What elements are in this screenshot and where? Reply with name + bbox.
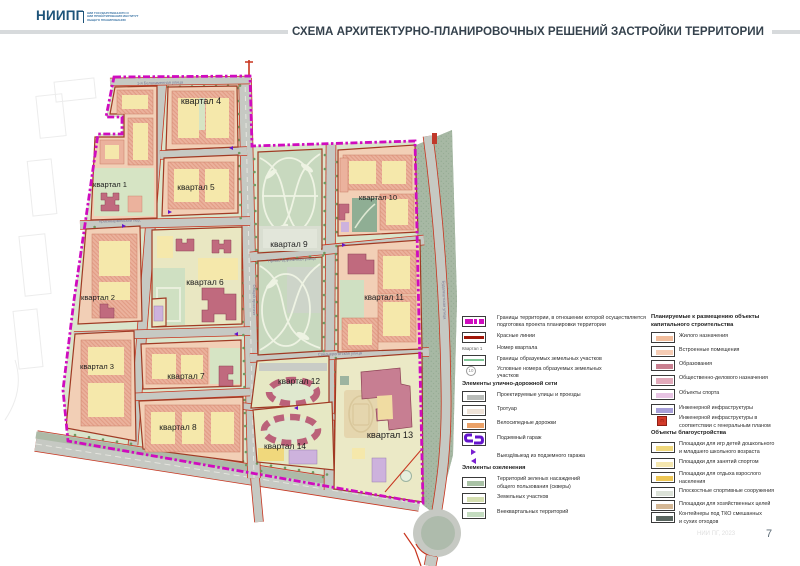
svg-text:квартал 2: квартал 2 — [81, 293, 115, 302]
svg-text:квартал 12: квартал 12 — [278, 376, 320, 386]
svg-text:квартал 7: квартал 7 — [167, 371, 205, 381]
svg-text:квартал 14: квартал 14 — [264, 441, 306, 451]
svg-text:квартал 13: квартал 13 — [367, 430, 413, 440]
svg-text:квартал 5: квартал 5 — [177, 182, 215, 192]
svg-text:квартал 3: квартал 3 — [80, 362, 114, 371]
svg-text:квартал 4: квартал 4 — [181, 96, 221, 106]
svg-text:квартал 9: квартал 9 — [270, 239, 308, 249]
svg-text:квартал 10: квартал 10 — [359, 193, 397, 202]
svg-text:Общий проспект: Общий проспект — [252, 285, 257, 316]
svg-text:квартал 6: квартал 6 — [186, 277, 224, 287]
svg-text:квартал 1: квартал 1 — [93, 180, 127, 189]
svg-text:квартал 8: квартал 8 — [159, 422, 197, 432]
svg-text:квартал 11: квартал 11 — [364, 293, 404, 302]
